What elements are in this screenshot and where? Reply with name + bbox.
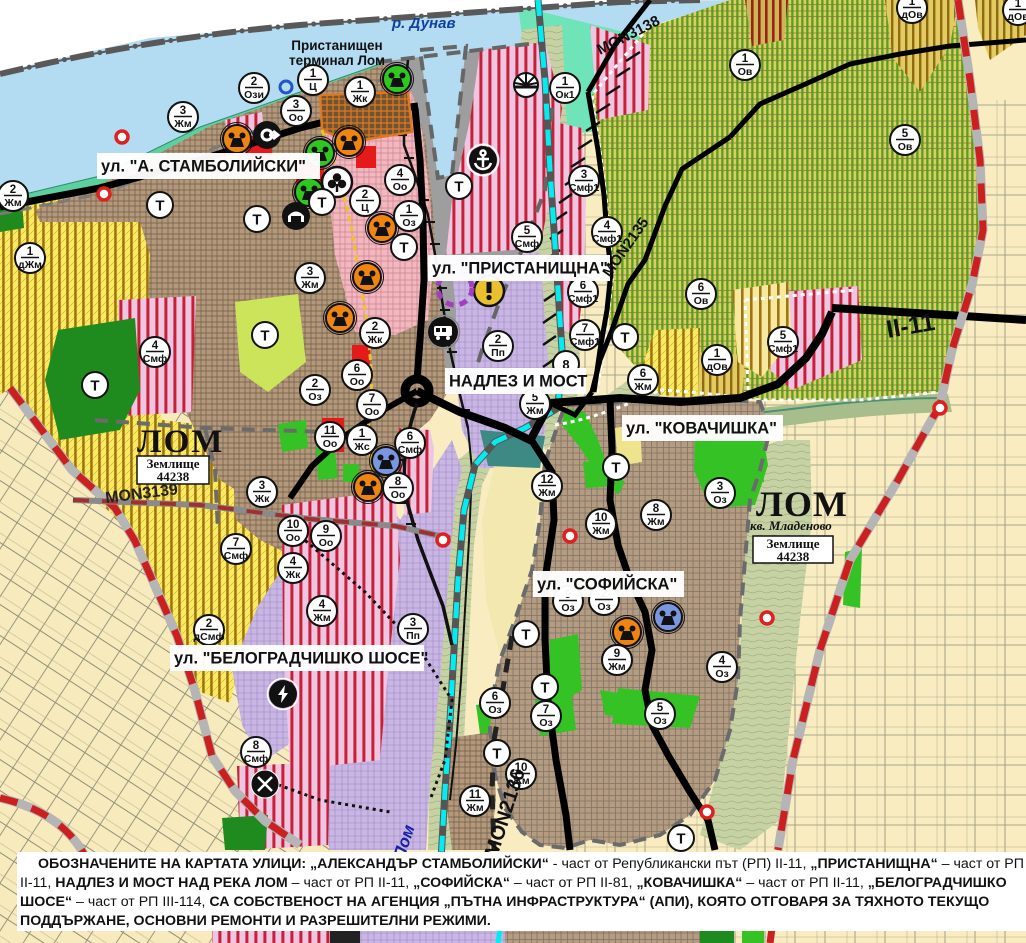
svg-text:Жк: Жк <box>254 493 270 505</box>
svg-text:Ц: Ц <box>309 81 317 93</box>
svg-text:Оз: Оз <box>713 494 726 506</box>
svg-text:Оо: Оо <box>393 181 408 193</box>
svg-text:Жм: Жм <box>312 612 330 624</box>
svg-text:6: 6 <box>492 691 498 703</box>
svg-text:6: 6 <box>580 280 586 292</box>
svg-text:Ов: Ов <box>898 141 913 153</box>
svg-text:7: 7 <box>543 704 549 716</box>
svg-text:Т: Т <box>454 179 463 196</box>
svg-text:4: 4 <box>152 340 159 352</box>
svg-text:2: 2 <box>312 378 318 390</box>
svg-text:Жм: Жм <box>646 516 664 528</box>
svg-text:II-11, НАДЛЕЗ И МОСТ НАД РЕКА: II-11, НАДЛЕЗ И МОСТ НАД РЕКА ЛОМ – част… <box>20 873 1007 891</box>
svg-text:ПОДДЪРЖАНЕ, ОСНОВНИ РЕМОНТИ И: ПОДДЪРЖАНЕ, ОСНОВНИ РЕМОНТИ И РАЗРЕШИТЕЛ… <box>20 913 491 929</box>
svg-text:Т: Т <box>260 328 269 345</box>
svg-text:Смф: Смф <box>224 550 248 562</box>
svg-text:Смф1: Смф1 <box>570 336 600 348</box>
svg-text:Т: Т <box>540 680 549 697</box>
svg-text:3: 3 <box>307 266 313 278</box>
svg-text:5: 5 <box>524 225 531 237</box>
svg-text:Оз: Оз <box>653 715 666 727</box>
svg-text:Оз: Оз <box>539 717 552 729</box>
svg-text:Жм: Жм <box>173 118 191 130</box>
svg-text:Т: Т <box>620 330 629 347</box>
svg-text:2: 2 <box>251 76 257 88</box>
svg-text:Оо: Оо <box>350 376 365 388</box>
svg-text:7: 7 <box>582 323 588 335</box>
svg-text:3: 3 <box>293 99 299 111</box>
svg-text:Жм: Жм <box>633 381 651 393</box>
svg-text:1: 1 <box>357 80 364 92</box>
svg-text:1: 1 <box>1015 0 1022 10</box>
svg-text:НАДЛЕЗ И МОСТ: НАДЛЕЗ И МОСТ <box>449 373 587 391</box>
svg-text:4: 4 <box>290 556 297 568</box>
svg-text:Оо: Оо <box>323 438 338 450</box>
svg-text:5: 5 <box>657 702 664 714</box>
svg-text:Т: Т <box>252 212 261 229</box>
svg-text:р. Дунав: р. Дунав <box>391 15 456 32</box>
svg-text:6: 6 <box>354 363 360 375</box>
svg-text:Т: Т <box>492 746 501 763</box>
svg-text:Жм: Жм <box>537 487 555 499</box>
svg-text:1: 1 <box>714 348 721 360</box>
svg-text:Оз: Оз <box>597 601 610 613</box>
svg-text:1: 1 <box>310 68 317 80</box>
svg-text:2: 2 <box>10 184 16 196</box>
svg-text:ЛОМ: ЛОМ <box>137 424 224 460</box>
svg-text:5: 5 <box>902 128 909 140</box>
svg-text:Оо: Оо <box>289 112 304 124</box>
svg-text:ул. "ПРИСТАНИЩНА": ул. "ПРИСТАНИЩНА" <box>432 260 608 278</box>
svg-text:1: 1 <box>406 204 413 216</box>
svg-text:5: 5 <box>780 330 787 342</box>
svg-text:Оз: Оз <box>715 668 728 680</box>
svg-text:ул. "СОФИЙСКА": ул. "СОФИЙСКА" <box>537 575 677 594</box>
svg-text:6: 6 <box>407 431 413 443</box>
svg-text:Оо: Оо <box>286 532 301 544</box>
svg-text:3: 3 <box>410 617 416 629</box>
svg-text:кв. Младеново: кв. Младеново <box>750 518 832 533</box>
svg-text:Пп: Пп <box>491 347 505 359</box>
svg-text:Жк: Жк <box>285 569 301 581</box>
svg-text:Оз: Оз <box>308 391 321 403</box>
svg-text:дОв: дОв <box>706 361 728 373</box>
svg-text:Жк: Жк <box>367 334 383 346</box>
svg-text:терминал Лом: терминал Лом <box>289 53 385 68</box>
svg-text:Т: Т <box>399 240 408 257</box>
svg-text:ОБОЗНАЧЕНИТЕ НА КАРТАТА УЛИЦИ:: ОБОЗНАЧЕНИТЕ НА КАРТАТА УЛИЦИ: „АЛЕКСАНД… <box>38 854 1024 872</box>
svg-text:Т: Т <box>521 627 530 644</box>
svg-text:Т: Т <box>90 378 99 395</box>
svg-text:дЖм: дЖм <box>18 259 42 271</box>
svg-text:ШОСЕ“ – част от РП III-114, СА: ШОСЕ“ – част от РП III-114, СА СОБСТВЕНО… <box>20 894 989 910</box>
svg-text:3: 3 <box>259 480 265 492</box>
svg-text:Жм: Жм <box>591 525 609 537</box>
svg-text:Жм: Жм <box>465 802 483 814</box>
svg-text:Смф1: Смф1 <box>568 293 598 305</box>
svg-text:Ози: Ози <box>244 89 264 101</box>
svg-text:Оо: Оо <box>319 537 334 549</box>
svg-text:дСмф: дСмф <box>193 631 224 643</box>
svg-text:Оо: Оо <box>365 406 380 418</box>
svg-text:8: 8 <box>395 476 402 488</box>
svg-text:Жс: Жс <box>353 441 369 453</box>
svg-text:Ов: Ов <box>694 295 709 307</box>
svg-text:4: 4 <box>397 168 404 180</box>
svg-text:Т: Т <box>317 195 326 212</box>
svg-text:4: 4 <box>604 220 611 232</box>
svg-text:Ов: Ов <box>738 66 753 78</box>
svg-text:3: 3 <box>717 481 723 493</box>
svg-text:ул. "БЕЛОГРАДЧИШКО ШОСЕ": ул. "БЕЛОГРАДЧИШКО ШОСЕ" <box>174 650 428 668</box>
svg-text:ул. "А. СТАМБОЛИЙСКИ": ул. "А. СТАМБОЛИЙСКИ" <box>101 157 306 176</box>
svg-text:9: 9 <box>323 524 329 536</box>
svg-text:4: 4 <box>319 599 326 611</box>
svg-text:Смф: Смф <box>244 753 268 765</box>
svg-text:44238: 44238 <box>777 549 810 564</box>
svg-text:Оз: Оз <box>488 704 501 716</box>
svg-text:Пп: Пп <box>406 630 420 642</box>
svg-text:4: 4 <box>719 655 726 667</box>
svg-text:Смф1: Смф1 <box>768 343 798 355</box>
svg-text:1: 1 <box>27 246 34 258</box>
svg-text:Пристанищен: Пристанищен <box>291 38 382 53</box>
svg-text:8: 8 <box>653 503 660 515</box>
svg-text:10: 10 <box>287 519 300 531</box>
svg-text:Жм: Жм <box>525 405 543 417</box>
svg-text:1: 1 <box>562 76 569 88</box>
svg-text:1: 1 <box>359 428 366 440</box>
svg-text:7: 7 <box>369 393 375 405</box>
svg-text:1: 1 <box>742 53 749 65</box>
svg-text:9: 9 <box>614 648 620 660</box>
svg-text:дОв: дОв <box>901 9 923 21</box>
svg-text:10: 10 <box>595 512 608 524</box>
svg-text:Жм: Жм <box>300 279 318 291</box>
svg-text:Т: Т <box>611 460 620 477</box>
svg-text:2: 2 <box>495 334 501 346</box>
svg-text:Оо: Оо <box>391 489 406 501</box>
svg-text:Смф1: Смф1 <box>569 182 599 194</box>
svg-text:6: 6 <box>698 282 704 294</box>
svg-text:2: 2 <box>362 189 368 201</box>
svg-text:дОв: дОв <box>1007 11 1026 23</box>
svg-text:Жк: Жк <box>352 93 368 105</box>
svg-text:Жм: Жм <box>607 661 625 673</box>
svg-text:8: 8 <box>253 740 260 752</box>
svg-text:Смф: Смф <box>398 444 422 456</box>
svg-text:2: 2 <box>372 321 378 333</box>
svg-text:7: 7 <box>233 537 239 549</box>
svg-text:Смф: Смф <box>515 238 539 250</box>
svg-text:6: 6 <box>640 368 646 380</box>
svg-text:3: 3 <box>581 169 587 181</box>
svg-text:11: 11 <box>324 425 337 437</box>
svg-text:Жм: Жм <box>3 197 21 209</box>
svg-text:2: 2 <box>206 618 212 630</box>
svg-text:ул. "КОВАЧИШКА": ул. "КОВАЧИШКА" <box>626 420 777 438</box>
svg-text:Смф: Смф <box>143 353 167 365</box>
svg-text:11: 11 <box>469 789 482 801</box>
svg-text:12: 12 <box>541 474 554 486</box>
svg-text:Т: Т <box>676 831 685 848</box>
svg-text:Оз: Оз <box>561 602 574 614</box>
svg-text:Ц: Ц <box>361 202 369 214</box>
svg-text:Оз: Оз <box>402 217 415 229</box>
svg-text:Т: Т <box>155 198 164 215</box>
svg-text:3: 3 <box>180 105 186 117</box>
svg-text:Ок1: Ок1 <box>555 89 574 101</box>
